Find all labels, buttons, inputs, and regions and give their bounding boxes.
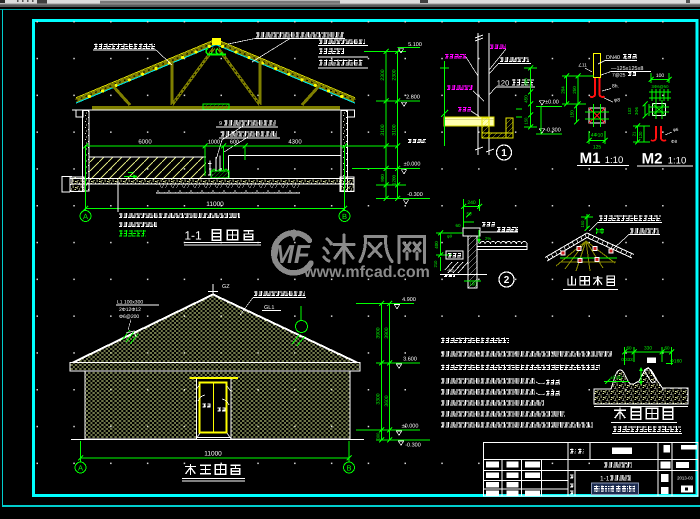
svg-text:150: 150: [570, 110, 575, 118]
svg-text:2Φ12Φ12: 2Φ12Φ12: [119, 307, 141, 313]
svg-text:1-1: 1-1: [184, 229, 202, 243]
svg-text:150: 150: [524, 117, 529, 125]
svg-text:1000: 1000: [208, 140, 220, 146]
svg-text:3100: 3100: [392, 124, 398, 135]
svg-text:5.100: 5.100: [408, 42, 422, 48]
svg-text:60: 60: [626, 346, 632, 351]
svg-text:4.900: 4.900: [402, 297, 416, 303]
svg-text:L1 100x300: L1 100x300: [117, 300, 143, 306]
svg-text:3Φ6: 3Φ6: [634, 106, 639, 115]
svg-text:250: 250: [572, 86, 577, 94]
svg-text:GZ: GZ: [222, 284, 230, 290]
svg-text:±0.000: ±0.000: [404, 162, 421, 168]
svg-text:60: 60: [664, 346, 670, 351]
svg-text:φ6: φ6: [673, 127, 679, 132]
svg-text:DN40: DN40: [606, 55, 620, 61]
svg-text:150: 150: [580, 220, 585, 227]
svg-text:1: 1: [501, 148, 507, 159]
svg-text:3100: 3100: [380, 124, 386, 135]
svg-text:±0.00: ±0.00: [610, 375, 622, 381]
svg-text:M1: M1: [580, 150, 601, 167]
svg-text:160: 160: [469, 282, 477, 287]
svg-text:2013-03: 2013-03: [677, 476, 693, 481]
svg-text:B: B: [346, 463, 351, 472]
svg-text:330: 330: [644, 346, 652, 352]
svg-text:4300: 4300: [288, 139, 302, 146]
svg-text:4Φ10: 4Φ10: [591, 133, 604, 139]
svg-text:8h.: 8h.: [612, 84, 619, 90]
svg-text:φ8: φ8: [614, 98, 620, 104]
svg-text:1200: 1200: [392, 174, 397, 185]
svg-text:2300: 2300: [380, 69, 386, 80]
svg-text:2.800: 2.800: [406, 95, 420, 101]
svg-text:3600: 3600: [384, 395, 390, 406]
svg-text:-0.300: -0.300: [405, 443, 421, 449]
svg-text:11000: 11000: [206, 201, 224, 208]
svg-text:120: 120: [638, 131, 643, 139]
svg-text:21: 21: [632, 131, 637, 136]
svg-text:6000: 6000: [138, 139, 152, 146]
svg-text:102: 102: [627, 107, 632, 115]
svg-text:204: 204: [561, 86, 566, 94]
svg-text:60: 60: [455, 223, 461, 228]
svg-text:1:10: 1:10: [605, 155, 624, 166]
svg-text:11000: 11000: [204, 451, 222, 458]
svg-text:www.mfcad.com: www.mfcad.com: [303, 264, 430, 281]
svg-text:M2: M2: [642, 151, 663, 168]
svg-text:∠11: ∠11: [578, 63, 587, 68]
svg-text:0.333: 0.333: [621, 357, 633, 362]
svg-text:3300: 3300: [376, 393, 382, 404]
svg-text:3.600: 3.600: [403, 357, 417, 363]
svg-text:2300: 2300: [392, 69, 398, 80]
svg-text:1:10: 1:10: [668, 156, 687, 167]
svg-text:Φ8: Φ8: [671, 139, 678, 144]
svg-text:-50: -50: [447, 268, 454, 273]
svg-text:GL1: GL1: [264, 305, 274, 311]
svg-text:2: 2: [504, 275, 510, 286]
svg-text:3Φ6@50: 3Φ6@50: [652, 84, 670, 89]
svg-text:±0.00: ±0.00: [545, 100, 559, 106]
svg-text:9: 9: [219, 121, 222, 127]
svg-text:100: 100: [656, 73, 665, 79]
svg-text:300: 300: [524, 78, 529, 86]
svg-text:3900: 3900: [376, 327, 382, 338]
svg-text:—125x125x8: —125x125x8: [611, 66, 643, 72]
svg-text:2%: 2%: [485, 236, 491, 241]
svg-text:120: 120: [497, 79, 510, 88]
svg-text:Φ6@200: Φ6@200: [119, 314, 139, 320]
svg-text:300: 300: [376, 432, 381, 440]
svg-text:A: A: [83, 212, 88, 221]
svg-text:φ9: φ9: [447, 234, 453, 239]
svg-text:210: 210: [433, 260, 438, 268]
svg-text:-0.300: -0.300: [407, 192, 423, 198]
svg-text:B: B: [342, 212, 347, 221]
svg-text:3900: 3900: [384, 327, 390, 338]
svg-text:600: 600: [230, 140, 239, 146]
svg-text:240: 240: [467, 200, 476, 206]
svg-text:7@25: 7@25: [612, 73, 626, 79]
svg-text:A: A: [78, 463, 83, 472]
svg-text:900: 900: [380, 174, 385, 182]
svg-text:-0.300: -0.300: [545, 128, 561, 134]
svg-text:±0.000: ±0.000: [402, 424, 419, 430]
svg-text:1-1: 1-1: [600, 476, 610, 483]
svg-text:450: 450: [524, 95, 529, 103]
svg-text:400: 400: [434, 241, 439, 249]
